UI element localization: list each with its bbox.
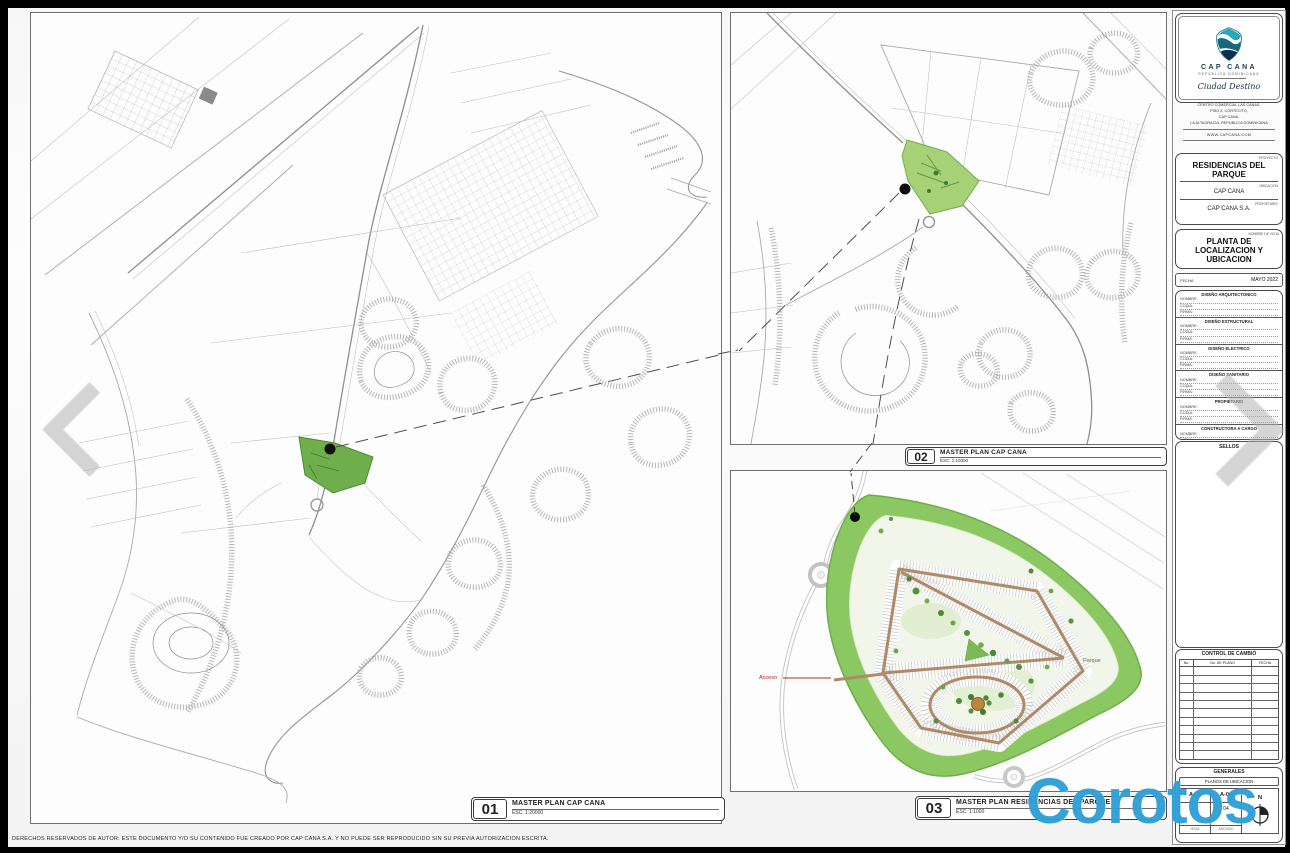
control-col-plano: No. DE PLANO xyxy=(1194,660,1252,666)
panel-master-plan-main: 01 MASTER PLAN CAP CANA ESC: 1:20000 xyxy=(30,12,722,824)
map-02-svg xyxy=(731,13,1166,444)
copyright-notice: DERECHOS RESERVADOS DE AUTOR: ESTE DOCUM… xyxy=(12,836,549,842)
date-row: FECHA MAYO 2022 xyxy=(1175,273,1283,287)
sheet-name-value: PLANTA DE LOCALIZACION Y UBICACION xyxy=(1179,237,1279,265)
panel-02-number: 02 xyxy=(907,449,935,464)
panel-01-number: 01 xyxy=(473,799,507,819)
signature-section: DISEÑO ESTRUCTURAL NOMBRE: CODIA: FIRMA: xyxy=(1176,318,1282,345)
map-03-svg: Parque Acceso xyxy=(731,471,1166,791)
control-row xyxy=(1180,735,1278,743)
parque-label: Parque xyxy=(1083,658,1101,664)
panel-02-label: 02 MASTER PLAN CAP CANA ESC: 1:10000 xyxy=(905,447,1167,466)
panel-02-title: MASTER PLAN CAP CANA xyxy=(940,449,1161,458)
brand-country: REPÚBLICA DOMINICANA xyxy=(1198,72,1259,76)
panel-01-title: MASTER PLAN CAP CANA xyxy=(512,800,719,810)
panel-01-scale: ESC: 1:20000 xyxy=(512,810,719,818)
panel-03-number: 03 xyxy=(917,798,951,818)
signature-section: DISEÑO ELECTRICO NOMBRE: CODIA: FIRMA: xyxy=(1176,345,1282,372)
signature-field: FIRMA: xyxy=(1180,337,1278,343)
control-title: CONTROL DE CAMBIO xyxy=(1179,651,1279,658)
control-row xyxy=(1180,726,1278,734)
panel-01-label: 01 MASTER PLAN CAP CANA ESC: 1:20000 xyxy=(471,797,725,821)
map-01-svg xyxy=(31,13,721,823)
control-row xyxy=(1180,667,1278,675)
control-col-fecha: FECHA xyxy=(1252,660,1278,666)
site-marker-dot-01 xyxy=(325,444,336,455)
panel-master-plan-zoom xyxy=(730,12,1167,445)
project-info-box: PROYECTO RESIDENCIAS DEL PARQUE UBICACIO… xyxy=(1175,153,1283,225)
brand-tagline: Ciudad Destino xyxy=(1198,82,1260,91)
capcana-shield-icon xyxy=(1212,26,1246,62)
plan-sheet: 01 MASTER PLAN CAP CANA ESC: 1:20000 xyxy=(8,8,1285,847)
control-row xyxy=(1180,709,1278,717)
photo-frame: 01 MASTER PLAN CAP CANA ESC: 1:20000 xyxy=(0,0,1290,853)
project-name: RESIDENCIAS DEL PARQUE xyxy=(1180,161,1278,179)
control-row xyxy=(1180,676,1278,684)
date-label: FECHA xyxy=(1180,278,1194,283)
control-table: No. No. DE PLANO FECHA xyxy=(1179,659,1279,760)
corotos-watermark: Corotos xyxy=(1026,764,1257,838)
company-address: CENTRO COMERCIAL LAS CANAS, PISO 2, CORT… xyxy=(1175,103,1283,151)
control-col-no: No. xyxy=(1180,660,1194,666)
site-highlight-02 xyxy=(902,140,979,214)
control-row xyxy=(1180,693,1278,701)
sheet-name-box: NOMBRE DE HOJA PLANTA DE LOCALIZACION Y … xyxy=(1175,229,1283,269)
brand-name: CAP CANA xyxy=(1201,64,1257,71)
control-row xyxy=(1180,718,1278,726)
panel-02-scale: ESC: 1:10000 xyxy=(940,458,1161,465)
company-website: WWW.CAPCANA.COM xyxy=(1175,132,1283,138)
control-row xyxy=(1180,701,1278,709)
control-de-cambio-box: CONTROL DE CAMBIO No. No. DE PLANO FECHA xyxy=(1175,649,1283,764)
logo-box: CAP CANA REPÚBLICA DOMINICANA Ciudad Des… xyxy=(1175,13,1283,103)
location-value: CAP CANA xyxy=(1180,189,1278,197)
site-marker-dot-02 xyxy=(900,184,911,195)
panel-site-plan: Parque Acceso xyxy=(730,470,1167,792)
control-row xyxy=(1180,743,1278,751)
site-highlight-01 xyxy=(299,437,373,493)
control-row xyxy=(1180,684,1278,692)
signature-field: FIRMA: xyxy=(1180,363,1278,369)
control-row xyxy=(1180,751,1278,758)
owner-value: CAP CANA S.A. xyxy=(1180,206,1278,214)
date-value: MAYO 2022 xyxy=(1251,277,1278,283)
acceso-label: Acceso xyxy=(759,675,777,681)
signature-section: DISEÑO ARQUITECTONICO NOMBRE: CODIA: FIR… xyxy=(1176,291,1282,318)
signature-field: FIRMA: xyxy=(1180,310,1278,316)
address-line: LA ALTAGRACIA, REPUBLICA DOMINICANA xyxy=(1175,121,1283,127)
